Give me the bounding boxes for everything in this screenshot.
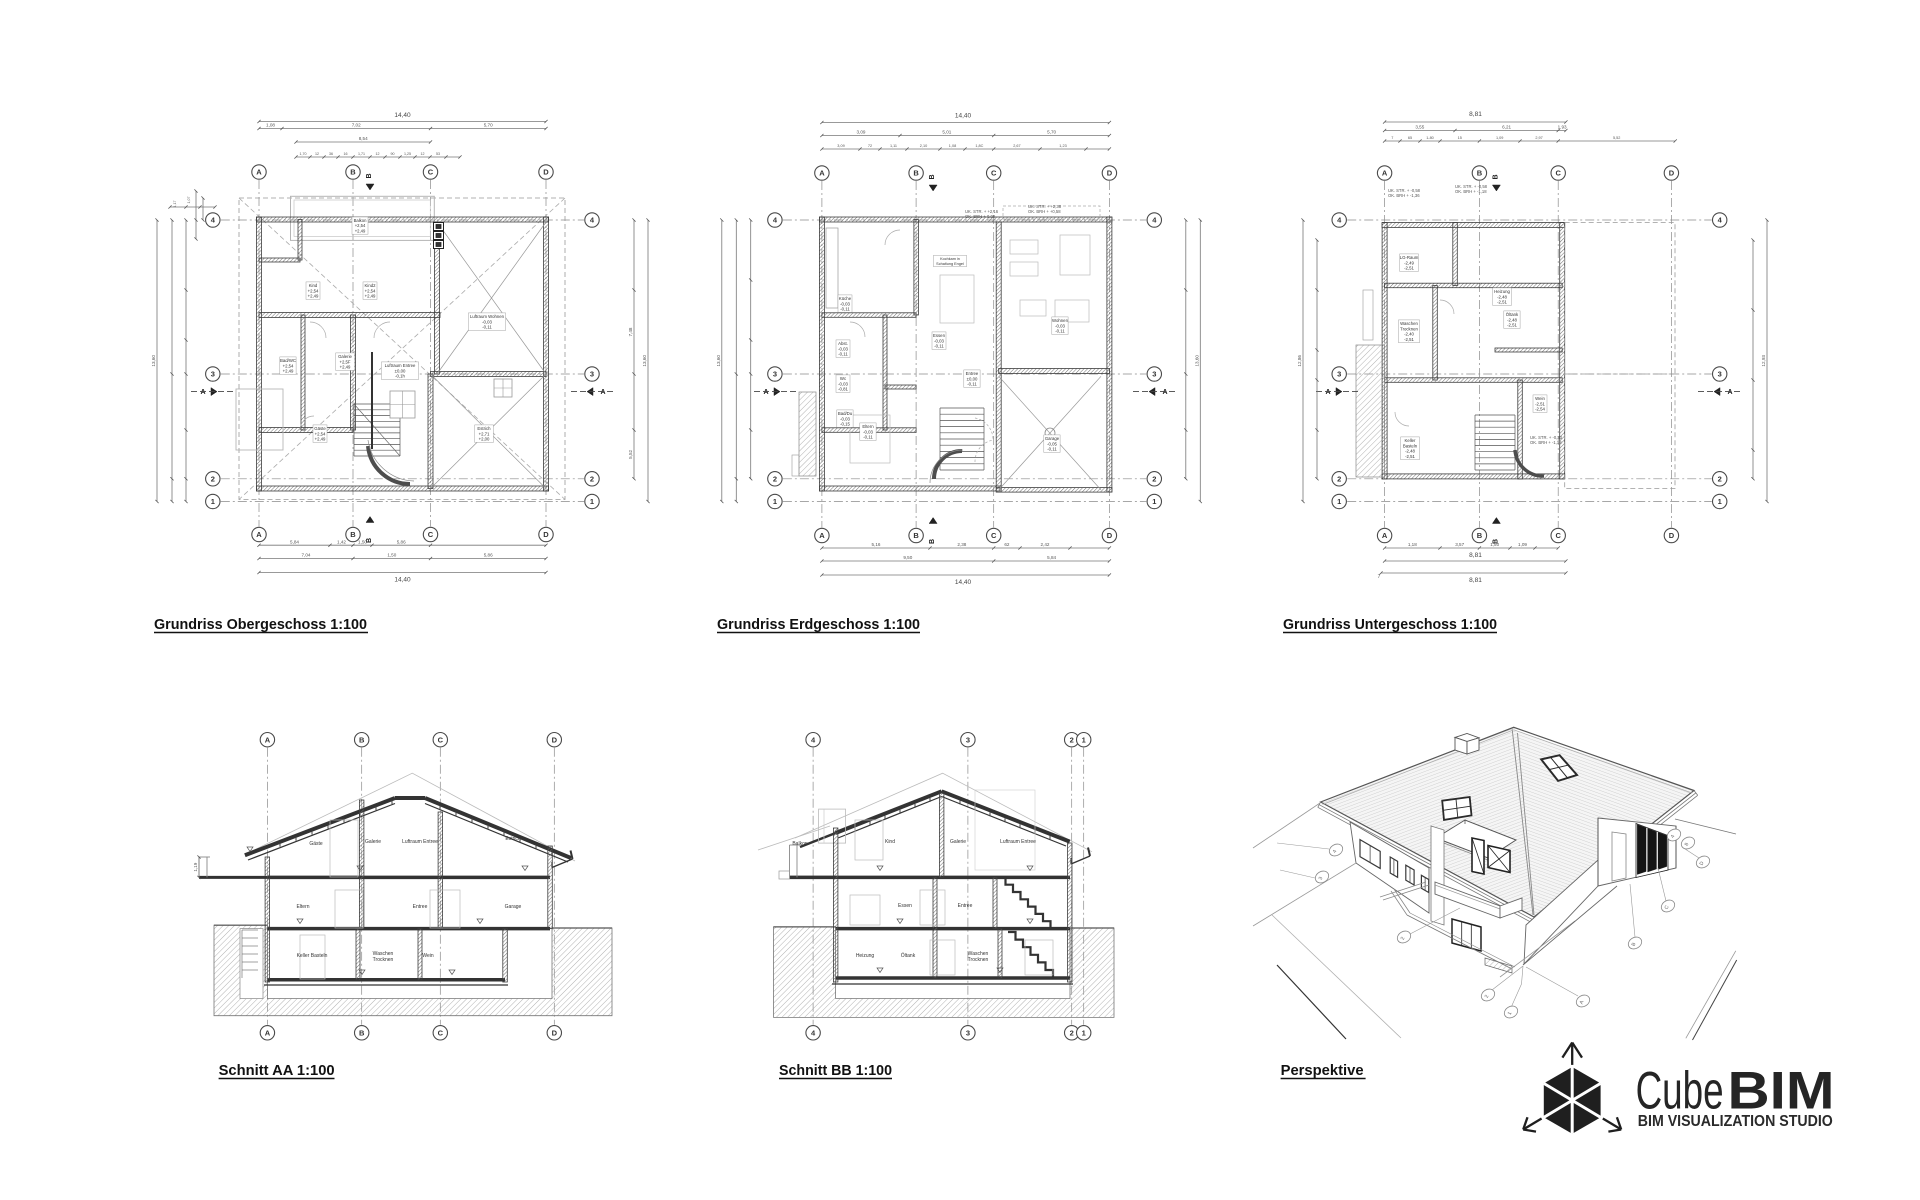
svg-text:Galerie: Galerie: [338, 354, 352, 359]
svg-text:+2,49: +2,49: [340, 365, 351, 370]
svg-text:Wein: Wein: [422, 953, 434, 959]
svg-text:A: A: [1382, 169, 1388, 178]
svg-text:Estrich: Estrich: [505, 836, 521, 842]
svg-text:1: 1: [590, 497, 594, 506]
svg-text:Eltern: Eltern: [862, 424, 874, 429]
svg-text:A: A: [265, 1028, 271, 1037]
svg-text:Luftraum Entree: Luftraum Entree: [402, 839, 438, 845]
svg-text:-0,03: -0,03: [863, 429, 873, 434]
svg-text:-0,03: -0,03: [934, 338, 944, 343]
svg-text:B: B: [350, 168, 356, 177]
svg-text:1,18: 1,18: [1408, 542, 1417, 547]
svg-text:7: 7: [1378, 574, 1381, 580]
svg-text:5,86: 5,86: [484, 553, 493, 558]
svg-text:1,19: 1,19: [193, 862, 198, 871]
svg-text:C: C: [438, 1028, 444, 1037]
svg-text:1,8C: 1,8C: [975, 144, 983, 148]
svg-text:C: C: [428, 530, 434, 539]
svg-text:B: B: [929, 539, 936, 544]
svg-text:-0,11: -0,11: [482, 325, 492, 330]
svg-text:-0,11: -0,11: [863, 435, 873, 440]
svg-text:Galerie: Galerie: [365, 839, 381, 845]
svg-text:1,71: 1,71: [358, 152, 365, 156]
svg-text:A: A: [600, 389, 605, 396]
svg-text:Luftraum Entree: Luftraum Entree: [385, 363, 416, 368]
svg-text:5,84: 5,84: [1047, 555, 1056, 560]
svg-text:+2,54: +2,54: [308, 288, 319, 293]
svg-text:-2,51: -2,51: [1405, 454, 1415, 459]
svg-text:B: B: [913, 169, 919, 178]
svg-text:B: B: [1477, 531, 1483, 540]
svg-text:Küche: Küche: [839, 296, 852, 301]
svg-text:Gäste: Gäste: [309, 841, 323, 847]
svg-text:Essen: Essen: [898, 903, 912, 909]
svg-text:D: D: [1107, 169, 1113, 178]
svg-text:±0,00: ±0,00: [395, 368, 406, 373]
svg-text:-0,15: -0,15: [840, 422, 850, 427]
svg-text:Grundriss Obergeschoss 1:100: Grundriss Obergeschoss 1:100: [154, 617, 367, 633]
svg-text:-2,48: -2,48: [1497, 294, 1507, 299]
svg-text:53: 53: [436, 152, 440, 156]
svg-text:8,81: 8,81: [1469, 111, 1482, 118]
svg-text:1,08: 1,08: [949, 144, 956, 148]
svg-text:7: 7: [1391, 136, 1393, 140]
svg-text:Galerie: Galerie: [950, 839, 966, 845]
svg-text:13,60: 13,60: [716, 355, 721, 367]
svg-text:3: 3: [1718, 370, 1722, 379]
svg-text:-0,05: -0,05: [1047, 441, 1057, 446]
svg-text:13,60: 13,60: [642, 355, 647, 367]
svg-text:1,93: 1,93: [1558, 125, 1567, 130]
svg-text:Keller Basteln: Keller Basteln: [297, 953, 328, 959]
svg-text:2: 2: [1070, 1028, 1074, 1037]
svg-text:-0,11: -0,11: [1047, 447, 1057, 452]
svg-text:Heizung: Heizung: [856, 953, 875, 959]
svg-text:+2,71: +2,71: [479, 431, 490, 436]
svg-text:1,50: 1,50: [1490, 542, 1499, 547]
svg-text:1: 1: [1718, 497, 1722, 506]
svg-text:1: 1: [773, 497, 777, 506]
svg-text:7,02: 7,02: [352, 123, 361, 128]
svg-text:7,48: 7,48: [628, 327, 633, 336]
svg-text:+2,49: +2,49: [355, 228, 366, 233]
svg-text:72: 72: [868, 144, 872, 148]
svg-text:OK. BRH + -1,36: OK. BRH + -1,36: [1388, 193, 1420, 198]
svg-text:Trocknen: Trocknen: [373, 957, 394, 963]
svg-text:Eltern: Eltern: [296, 904, 309, 910]
svg-text:A: A: [256, 168, 262, 177]
svg-text:14,40: 14,40: [394, 577, 411, 584]
svg-text:Schnitt AA 1:100: Schnitt AA 1:100: [219, 1063, 335, 1079]
svg-text:C: C: [1555, 169, 1561, 178]
svg-text:1,25: 1,25: [404, 152, 411, 156]
svg-text:BIM: BIM: [1728, 1062, 1835, 1121]
svg-text:Wc: Wc: [840, 376, 847, 381]
svg-text:Entree: Entree: [966, 371, 979, 376]
svg-text:-0,81: -0,81: [838, 387, 848, 392]
svg-text:9,50: 9,50: [903, 555, 912, 560]
svg-text:Wein: Wein: [1535, 396, 1545, 401]
svg-text:D: D: [543, 530, 549, 539]
svg-text:-2,40: -2,40: [1404, 332, 1414, 337]
svg-text:1: 1: [1082, 735, 1086, 744]
svg-text:16: 16: [344, 152, 348, 156]
svg-text:Entree: Entree: [958, 903, 973, 909]
svg-text:2,38: 2,38: [957, 542, 966, 547]
svg-text:-0,11: -0,11: [967, 382, 977, 387]
svg-text:-2,51: -2,51: [1535, 401, 1545, 406]
svg-text:OK. BRH + 0,00: OK. BRH + 0,00: [965, 214, 996, 219]
svg-text:B: B: [366, 173, 373, 178]
svg-text:A: A: [819, 169, 825, 178]
svg-text:1,08: 1,08: [266, 123, 275, 128]
svg-text:12: 12: [315, 152, 319, 156]
svg-text:A: A: [256, 530, 262, 539]
svg-text:3,55: 3,55: [1415, 125, 1424, 130]
svg-text:Öltank: Öltank: [1506, 312, 1519, 317]
svg-text:Kind: Kind: [885, 839, 895, 845]
svg-text:8,81: 8,81: [1469, 552, 1482, 559]
svg-text:Garage: Garage: [1045, 436, 1060, 441]
svg-text:-2,49: -2,49: [1404, 260, 1414, 265]
svg-text:Perspektive: Perspektive: [1281, 1062, 1364, 1079]
svg-text:5,01: 5,01: [942, 130, 951, 135]
svg-text:Trocknen: Trocknen: [968, 957, 989, 963]
svg-text:OK. BRH + -1,18: OK. BRH + -1,18: [1455, 189, 1487, 194]
svg-text:Balkon: Balkon: [792, 841, 808, 847]
svg-text:1-80: 1-80: [1426, 136, 1434, 140]
svg-text:Kochkam in: Kochkam in: [940, 257, 960, 261]
svg-text:1,23: 1,23: [1059, 144, 1066, 148]
svg-text:3: 3: [1337, 370, 1341, 379]
svg-text:Öltank: Öltank: [901, 952, 916, 959]
svg-text:+2,00: +2,00: [479, 437, 490, 442]
svg-text:13,60: 13,60: [151, 355, 156, 367]
svg-text:B: B: [1477, 169, 1483, 178]
svg-text:90: 90: [391, 152, 395, 156]
svg-text:13,60: 13,60: [1195, 355, 1200, 367]
svg-text:-0,11: -0,11: [934, 344, 944, 349]
svg-text:5,84: 5,84: [290, 539, 299, 544]
svg-text:5,52: 5,52: [628, 449, 633, 458]
svg-text:-0,11: -0,11: [840, 307, 850, 312]
svg-text:2: 2: [773, 474, 777, 483]
svg-text:-2,54: -2,54: [1535, 407, 1545, 412]
svg-text:8,81: 8,81: [1469, 577, 1482, 584]
svg-text:1,50: 1,50: [387, 553, 396, 558]
svg-text:5,70: 5,70: [484, 123, 493, 128]
svg-text:Waschen: Waschen: [1400, 321, 1418, 326]
svg-text:B: B: [1492, 174, 1499, 179]
svg-text:2,42: 2,42: [1041, 542, 1050, 547]
svg-text:-0,11: -0,11: [838, 352, 848, 357]
svg-text:2,97: 2,97: [1535, 136, 1542, 140]
svg-text:3,57: 3,57: [1455, 542, 1464, 547]
svg-text:15: 15: [1458, 136, 1462, 140]
svg-text:1,17: 1,17: [173, 201, 177, 208]
svg-text:1,07: 1,07: [187, 197, 191, 204]
svg-text:2: 2: [211, 474, 215, 483]
svg-text:+2,49: +2,49: [283, 369, 294, 374]
svg-text:D: D: [543, 168, 549, 177]
svg-text:-2,51: -2,51: [1404, 337, 1414, 342]
svg-text:14,40: 14,40: [955, 113, 972, 120]
svg-text:+2,49: +2,49: [365, 294, 376, 299]
svg-text:1,42: 1,42: [337, 539, 346, 544]
svg-text:Gäste: Gäste: [314, 426, 326, 431]
svg-text:1,09: 1,09: [1496, 136, 1503, 140]
svg-text:B: B: [366, 538, 373, 543]
svg-text:2: 2: [1152, 474, 1156, 483]
svg-text:Kind2: Kind2: [365, 283, 377, 288]
svg-text:2,10: 2,10: [920, 144, 927, 148]
svg-text:-0,03: -0,03: [1055, 323, 1065, 328]
svg-text:Grundriss Erdgeschoss 1:100: Grundriss Erdgeschoss 1:100: [717, 617, 920, 633]
svg-text:A: A: [200, 389, 205, 396]
svg-text:3,09: 3,09: [837, 144, 844, 148]
svg-text:D: D: [1107, 531, 1113, 540]
svg-text:-0,11: -0,11: [1055, 329, 1065, 334]
svg-text:B: B: [350, 530, 356, 539]
svg-text:2: 2: [1070, 735, 1074, 744]
svg-text:Schaltung Engel: Schaltung Engel: [936, 262, 964, 266]
svg-text:Entree: Entree: [413, 904, 428, 910]
svg-text:-2,48: -2,48: [1507, 317, 1517, 322]
svg-text:1: 1: [1082, 1028, 1086, 1037]
svg-text:Bad/WC: Bad/WC: [280, 358, 296, 363]
svg-text:1,70: 1,70: [300, 152, 307, 156]
svg-text:5,16: 5,16: [872, 542, 881, 547]
svg-text:+2,54: +2,54: [365, 288, 376, 293]
svg-text:LG-Raum: LG-Raum: [1400, 255, 1419, 260]
svg-text:+2,5F: +2,5F: [339, 359, 350, 364]
svg-text:-2,51: -2,51: [1497, 300, 1507, 305]
svg-text:BIM VISUALIZATION STUDIO: BIM VISUALIZATION STUDIO: [1638, 1113, 1833, 1130]
svg-text:-0,1h: -0,1h: [395, 374, 405, 379]
svg-text:-2,51: -2,51: [1507, 323, 1517, 328]
svg-text:Bad/Du: Bad/Du: [838, 411, 853, 416]
svg-text:OK. BRH + -1,18: OK. BRH + -1,18: [1530, 440, 1562, 445]
svg-text:D: D: [1669, 169, 1675, 178]
svg-text:+2,54: +2,54: [315, 431, 326, 436]
svg-text:B: B: [929, 174, 936, 179]
svg-text:2,67: 2,67: [1013, 144, 1020, 148]
svg-text:-2,48: -2,48: [1405, 449, 1415, 454]
svg-text:-0,03: -0,03: [840, 416, 850, 421]
svg-text:65: 65: [1408, 136, 1412, 140]
svg-text:A: A: [1727, 389, 1732, 396]
svg-text:36: 36: [329, 152, 333, 156]
svg-text:A: A: [763, 389, 768, 396]
svg-text:Schnitt BB 1:100: Schnitt BB 1:100: [779, 1063, 892, 1079]
svg-text:3,09: 3,09: [857, 130, 866, 135]
svg-text:A: A: [265, 735, 271, 744]
svg-text:3: 3: [1152, 370, 1156, 379]
svg-text:A: A: [819, 531, 825, 540]
svg-text:A: A: [1382, 531, 1388, 540]
svg-text:Heizung: Heizung: [1494, 289, 1510, 294]
svg-text:1,11: 1,11: [890, 144, 897, 148]
svg-text:Garage: Garage: [505, 904, 522, 910]
svg-text:12: 12: [376, 152, 380, 156]
svg-text:Wohnen: Wohnen: [1052, 318, 1069, 323]
svg-text:8,54: 8,54: [359, 136, 368, 141]
svg-text:Grundriss Untergeschoss 1:100: Grundriss Untergeschoss 1:100: [1283, 617, 1497, 633]
svg-text:A: A: [1325, 389, 1330, 396]
svg-text:12,86: 12,86: [1297, 355, 1302, 367]
svg-text:±0,00: ±0,00: [967, 376, 978, 381]
svg-text:3: 3: [966, 1028, 970, 1037]
svg-text:+2,49: +2,49: [308, 294, 319, 299]
svg-text:-0,03: -0,03: [838, 346, 848, 351]
svg-text:Luftraum Wohnen: Luftraum Wohnen: [470, 314, 505, 319]
svg-text:14,40: 14,40: [394, 112, 411, 119]
svg-text:2: 2: [1718, 474, 1722, 483]
svg-text:3: 3: [211, 370, 215, 379]
svg-text:Essen: Essen: [933, 333, 946, 338]
svg-text:+2,54: +2,54: [283, 363, 294, 368]
svg-text:3: 3: [590, 370, 594, 379]
svg-text:C: C: [438, 735, 444, 744]
svg-text:12,93: 12,93: [1761, 355, 1766, 367]
svg-text:14,40: 14,40: [955, 579, 972, 586]
svg-text:1,50: 1,50: [358, 539, 367, 544]
svg-text:12: 12: [421, 152, 425, 156]
svg-text:2: 2: [590, 474, 594, 483]
svg-text:3: 3: [773, 370, 777, 379]
svg-text:-2,51: -2,51: [1404, 266, 1414, 271]
svg-text:A: A: [1162, 389, 1167, 396]
svg-text:1: 1: [211, 497, 215, 506]
svg-text:D: D: [552, 735, 558, 744]
svg-text:C: C: [991, 531, 997, 540]
svg-text:OK. BRH + +0,58: OK. BRH + +0,58: [1028, 209, 1061, 214]
svg-text:-0,03: -0,03: [840, 301, 850, 306]
svg-text:D: D: [1669, 531, 1675, 540]
svg-text:7,04: 7,04: [302, 553, 311, 558]
svg-text:5,52: 5,52: [1613, 136, 1620, 140]
svg-text:5,86: 5,86: [397, 539, 406, 544]
svg-text:B: B: [359, 1028, 365, 1037]
svg-text:-0,03: -0,03: [838, 381, 848, 386]
svg-text:1: 1: [1152, 497, 1156, 506]
svg-text:3: 3: [966, 735, 970, 744]
svg-text:C: C: [1555, 531, 1561, 540]
svg-text:+2,49: +2,49: [315, 437, 326, 442]
svg-text:Kind: Kind: [309, 283, 318, 288]
svg-text:D: D: [552, 1028, 558, 1037]
svg-text:B: B: [913, 531, 919, 540]
svg-text:Trocknen: Trocknen: [1400, 326, 1418, 331]
svg-text:5,70: 5,70: [1047, 130, 1056, 135]
svg-text:Abst.: Abst.: [838, 341, 848, 346]
svg-text:-0,03: -0,03: [482, 319, 492, 324]
svg-text:B: B: [359, 735, 365, 744]
svg-text:C: C: [991, 169, 997, 178]
svg-text:Luftraum Entree: Luftraum Entree: [1000, 839, 1036, 845]
svg-text:62: 62: [1004, 542, 1010, 547]
svg-text:2: 2: [1337, 474, 1341, 483]
svg-text:1: 1: [1337, 497, 1341, 506]
svg-text:Cube: Cube: [1636, 1062, 1724, 1121]
svg-text:Estrich: Estrich: [477, 426, 491, 431]
svg-text:1,09: 1,09: [1518, 542, 1527, 547]
svg-text:6,21: 6,21: [1502, 125, 1511, 130]
svg-text:C: C: [428, 168, 434, 177]
svg-text:Keller: Keller: [1405, 438, 1417, 443]
svg-text:Basteln: Basteln: [1403, 443, 1418, 448]
